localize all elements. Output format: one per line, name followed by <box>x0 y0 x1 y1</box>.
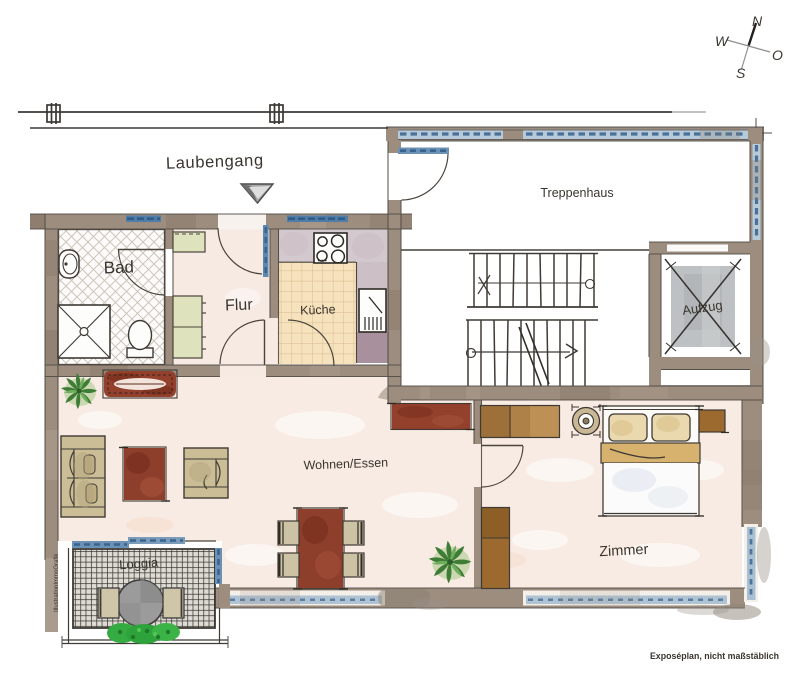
svg-text:W: W <box>715 33 730 49</box>
svg-text:O: O <box>772 47 783 63</box>
svg-text:Exposéplan, nicht maßstäblich: Exposéplan, nicht maßstäblich <box>650 651 779 661</box>
svg-text:Loggia: Loggia <box>119 555 160 573</box>
svg-text:S: S <box>736 65 746 81</box>
svg-text:Flur: Flur <box>225 297 254 315</box>
svg-text:Treppenhaus: Treppenhaus <box>540 186 613 200</box>
svg-text:Küche: Küche <box>300 302 336 317</box>
svg-text:Zimmer: Zimmer <box>599 542 649 561</box>
svg-text:IllustrationImmoGrafik: IllustrationImmoGrafik <box>54 553 60 612</box>
svg-text:Bad: Bad <box>103 257 134 277</box>
svg-text:Wohnen/Essen: Wohnen/Essen <box>303 456 388 473</box>
svg-text:N: N <box>752 13 763 29</box>
svg-text:Laubengang: Laubengang <box>166 151 264 172</box>
